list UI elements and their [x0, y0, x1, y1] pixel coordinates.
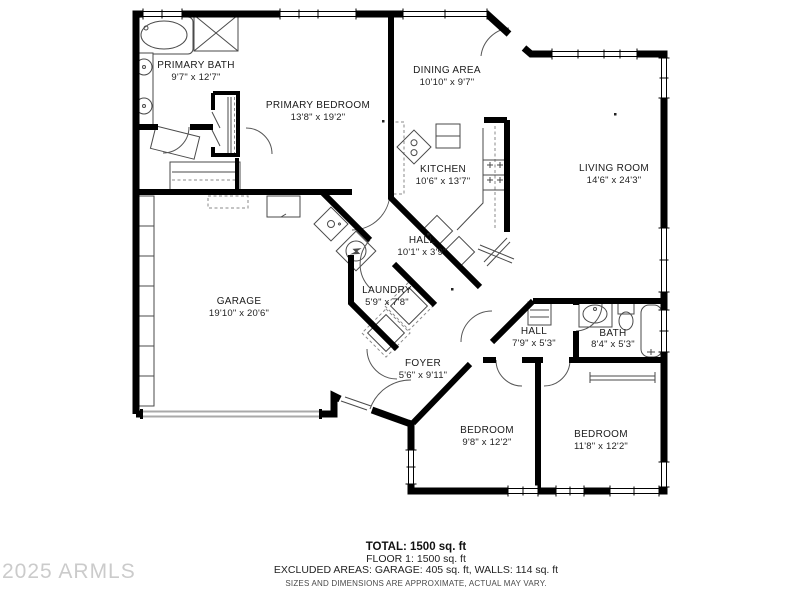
armls-watermark: 2025 ARMLS — [2, 560, 136, 583]
bath-sink-icon — [579, 302, 612, 327]
room-label-foyer: FOYER — [405, 358, 441, 369]
kitchen-sink-icon — [397, 130, 431, 164]
room-label-kitchen: KITCHEN — [420, 164, 466, 175]
room-dims-hall-rear: 7'9" x 5'3" — [512, 338, 556, 349]
refrigerator-icon — [436, 124, 460, 148]
garage-door — [140, 409, 322, 420]
garage-storage-dashed — [208, 196, 248, 208]
room-dims-bath: 8'4" x 5'3" — [591, 339, 635, 350]
floorplan-page: PRIMARY BATH 9'7" x 12'7" PRIMARY BEDROO… — [0, 0, 800, 600]
disclaimer-text: SIZES AND DIMENSIONS ARE APPROXIMATE, AC… — [285, 579, 546, 588]
room-label-primary-bedroom: PRIMARY BEDROOM — [266, 100, 370, 111]
floorplan-drawing: PRIMARY BATH 9'7" x 12'7" PRIMARY BEDROO… — [0, 0, 800, 600]
shower-icon — [194, 15, 238, 51]
foyer-closet-bifold — [341, 397, 371, 410]
garage-shelves — [137, 196, 154, 406]
total-area-text: TOTAL: 1500 sq. ft — [366, 541, 467, 553]
water-heater-box — [267, 196, 300, 217]
door-arcs — [163, 28, 602, 409]
room-label-living-room: LIVING ROOM — [579, 163, 649, 174]
room-label-primary-bath: PRIMARY BATH — [157, 60, 235, 71]
room-dims-bedroom-right: 11'8" x 12'2" — [574, 441, 628, 452]
room-dims-dining-area: 10'10" x 9'7" — [420, 77, 475, 88]
room-dims-hall-center: 10'1" x 3'9" — [397, 247, 446, 258]
room-dims-laundry: 5'9" x 7'8" — [365, 297, 409, 308]
kitchen-island — [457, 126, 510, 266]
room-label-hall-rear: HALL — [521, 326, 547, 337]
room-dims-primary-bath: 9'7" x 12'7" — [171, 72, 220, 83]
room-label-bath: BATH — [599, 328, 626, 339]
room-label-bedroom-middle: BEDROOM — [460, 425, 514, 436]
excluded-areas-text: EXCLUDED AREAS: GARAGE: 405 sq. ft, WALL… — [274, 564, 558, 576]
walk-in-closet — [212, 97, 235, 153]
threshold-lines — [478, 245, 514, 263]
room-label-bedroom-right: BEDROOM — [574, 429, 628, 440]
bedroom-bench — [150, 126, 199, 159]
hall-closet-shelves — [170, 162, 240, 190]
room-label-garage: GARAGE — [217, 296, 262, 307]
toilet-icon — [618, 303, 634, 330]
dimension-ticks — [382, 113, 617, 291]
bedroom-closet-sliders — [590, 372, 655, 383]
bathtub-icon — [136, 17, 193, 54]
room-dims-foyer: 5'6" x 9'11" — [399, 370, 448, 381]
room-dims-living-room: 14'6" x 24'3" — [587, 175, 642, 186]
room-dims-kitchen: 10'6" x 13'7" — [416, 176, 471, 187]
room-dims-bedroom-middle: 9'8" x 12'2" — [462, 437, 511, 448]
room-label-dining-area: DINING AREA — [413, 65, 481, 76]
room-label-hall-center: HALL — [409, 235, 435, 246]
area-summary: TOTAL: 1500 sq. ft FLOOR 1: 1500 sq. ft … — [274, 541, 558, 588]
room-dims-primary-bedroom: 13'8" x 19'2" — [291, 112, 346, 123]
dryer-icon — [362, 309, 410, 357]
room-dims-garage: 19'10" x 20'6" — [209, 308, 269, 319]
room-label-laundry: LAUNDRY — [362, 285, 412, 296]
